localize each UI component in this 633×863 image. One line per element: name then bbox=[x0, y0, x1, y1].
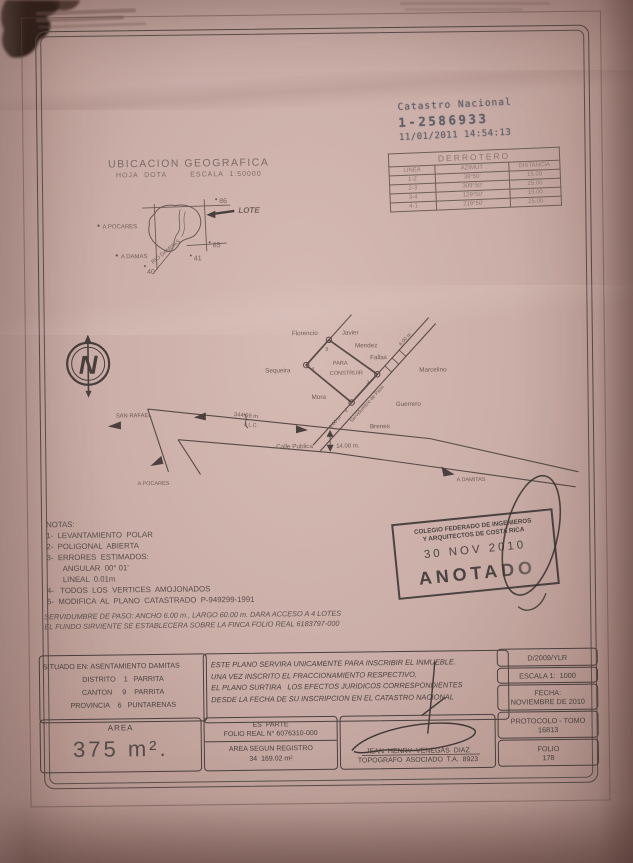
parcel-label-construir: CONSTRUIR bbox=[330, 370, 363, 376]
a-pocares-arrow bbox=[150, 456, 163, 466]
surveyor-box: JEAN HENRY VENEGAS DIAZ TOPOGRAFO ASOCIA… bbox=[339, 714, 496, 770]
road-label-san-rafael: SAN RAFAEL bbox=[116, 413, 153, 419]
location-map-lote-label: LOTE bbox=[238, 206, 260, 215]
map-label-a-damas: A DAMAS bbox=[121, 254, 148, 260]
derrotero-cell: 25.00 bbox=[510, 196, 562, 207]
road-to-lc-label: a L.C. bbox=[244, 422, 258, 429]
grid-label-41: 41 bbox=[194, 255, 202, 262]
situado-line: PROVINCIA 6 PUNTARENAS bbox=[43, 697, 203, 712]
derrotero-table: DERROTERO LINEA AZIMUT DISTANCIA 1-2 39°… bbox=[388, 147, 562, 213]
protocolo-value: 16813 bbox=[499, 724, 598, 734]
escala-box: ESCALA 1: 1000 bbox=[497, 667, 598, 684]
parcel-label-para: PARA bbox=[333, 361, 348, 367]
neighbor-sequeira: Sequeira bbox=[265, 367, 291, 374]
reference-box: D/2009/YLR bbox=[497, 648, 598, 667]
ubicacion-geografica-header: UBICACION GEOGRAFICA HOJA DOTA ESCALA 1:… bbox=[89, 156, 289, 179]
neighbor-marcelino: Marcelino bbox=[419, 366, 447, 373]
situado-line: SITUADO EN: ASENTAMIENTO DAMITAS bbox=[43, 658, 203, 673]
neighbor-brenes: Brenes bbox=[370, 423, 390, 430]
grid-label-85: 85 bbox=[213, 242, 221, 249]
fecha-box: FECHA: NOVIEMBRE DE 2010 bbox=[497, 684, 598, 711]
servidumbre-note: SERVIDUMBRE DE PASO: ANCHO 6.00 m., LARG… bbox=[44, 609, 341, 632]
location-map-labels: LOTE 86 85 40 41 A POCARES A DAMAS RIO D… bbox=[102, 198, 261, 277]
site-plan-labels: Florencio Javier Mendez Fallas Sequeira … bbox=[115, 328, 486, 487]
map-label-a-pocares: A POCARES bbox=[102, 224, 137, 230]
pen-oval-mark bbox=[478, 456, 610, 633]
notas-block: NOTAS: 1- LEVANTAMIENTO POLAR 2- POLIGON… bbox=[46, 517, 254, 608]
neighbor-mendez: Mendez bbox=[355, 342, 377, 349]
location-map-lote-arrow bbox=[206, 210, 234, 218]
area-registro-cell: AREA SEGUN REGISTRO 34 169.02 m² bbox=[205, 741, 337, 769]
document: Catastro Nacional 1-2586933 11/01/2011 1… bbox=[0, 0, 633, 863]
ubicacion-title: UBICACION GEOGRAFICA bbox=[89, 156, 289, 170]
folio-value: 178 bbox=[499, 752, 598, 762]
area-label: AREA bbox=[41, 722, 201, 733]
neighbor-fallas: Fallas bbox=[370, 354, 387, 361]
road-distance-label: 344.59 m. bbox=[234, 412, 261, 420]
surveyor-title: TOPOGRAFO ASOCIADO T.A. 8923 bbox=[341, 755, 495, 766]
neighbor-florencio: Florencio bbox=[292, 330, 318, 337]
location-sketch-map: LOTE 86 85 40 41 A POCARES A DAMAS RIO D… bbox=[82, 192, 311, 290]
area-registro-value: 34 169.02 m² bbox=[205, 754, 337, 766]
vertex-label-1: 1 bbox=[345, 408, 348, 414]
protocolo-box: PROTOCOLO - TOMO 16813 bbox=[497, 711, 598, 739]
folio-real-value: FOLIO REAL N° 6076310-000 bbox=[205, 729, 337, 740]
vertex-label-2: 2 bbox=[366, 380, 369, 386]
map-label-rio-damitas: RIO DAMITAS bbox=[150, 239, 182, 266]
reference-number: D/2009/YLR bbox=[498, 652, 597, 662]
dimension-arrow-down bbox=[327, 445, 334, 452]
fecha-value: NOVIEMBRE DE 2010 bbox=[498, 697, 597, 707]
folio-box: FOLIO 178 bbox=[498, 739, 599, 767]
es-parte-cell: ES PARTE FOLIO REAL N° 6076310-000 bbox=[204, 717, 336, 743]
road-fork-right bbox=[178, 439, 200, 474]
dimension-arrow-up bbox=[326, 430, 333, 437]
compass-north-letter: N bbox=[79, 350, 99, 380]
a-damitas-arrow bbox=[441, 466, 454, 476]
road-label-a-pocares: A POCARES bbox=[138, 481, 170, 487]
vertex-label-3: 3 bbox=[325, 347, 328, 353]
street-width-label: 14.00 m. bbox=[336, 443, 360, 449]
derrotero-cell: 4-1 bbox=[390, 201, 436, 212]
area-value: 375 m². bbox=[41, 735, 201, 763]
neighbor-mora: Mora bbox=[312, 394, 327, 401]
neighbor-javier: Javier bbox=[342, 329, 359, 336]
situado-box: SITUADO EN: ASENTAMIENTO DAMITAS DISTRIT… bbox=[39, 653, 208, 723]
legal-text-box: ESTE PLANO SERVIRA UNICAMENTE PARA INSCR… bbox=[203, 650, 510, 724]
neighbor-guerrero: Guerrero bbox=[396, 401, 422, 408]
scanned-cadastral-plan-photo: Catastro Nacional 1-2586933 11/01/2011 1… bbox=[0, 0, 633, 863]
vertex-label-4: 4 bbox=[311, 367, 314, 373]
san-rafael-arrow bbox=[108, 421, 121, 429]
es-parte-box: ES PARTE FOLIO REAL N° 6076310-000 AREA … bbox=[203, 716, 338, 772]
easement-width-label: 6.00 m bbox=[398, 332, 413, 347]
road-direction-arrow bbox=[296, 425, 308, 433]
location-map-river-line-2 bbox=[181, 212, 185, 237]
street-name-label: Calle Publica bbox=[276, 443, 313, 450]
grid-label-86: 86 bbox=[219, 198, 227, 205]
escala-value: ESCALA 1: 1000 bbox=[498, 670, 597, 680]
grid-label-40: 40 bbox=[147, 269, 155, 276]
area-box: AREA 375 m². bbox=[39, 717, 202, 773]
catastro-nacional-stamp: Catastro Nacional 1-2586933 11/01/2011 1… bbox=[397, 94, 574, 143]
